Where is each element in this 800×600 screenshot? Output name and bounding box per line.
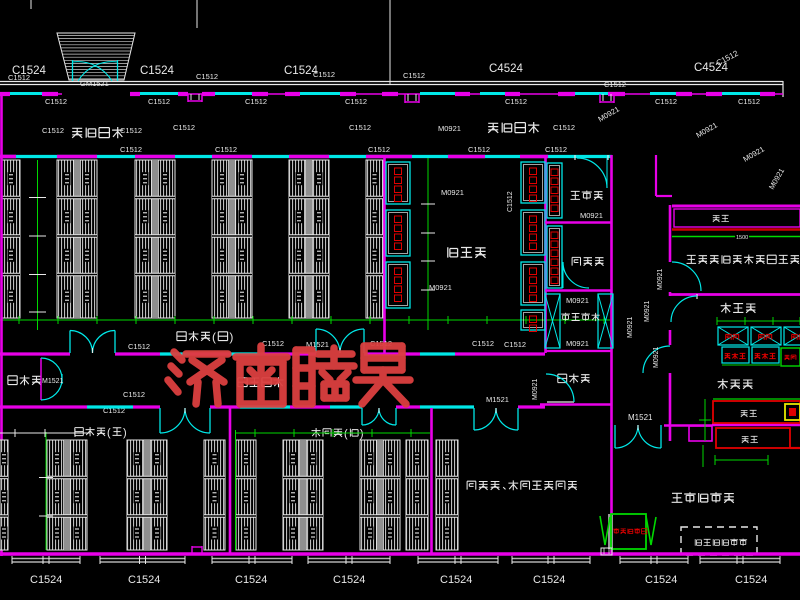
svg-text:M1521: M1521 — [42, 378, 64, 385]
svg-text:M0921: M0921 — [653, 346, 660, 368]
svg-text:M0921: M0921 — [441, 188, 464, 197]
svg-text:M1521: M1521 — [628, 413, 653, 422]
svg-text:GM1521: GM1521 — [80, 79, 109, 88]
svg-text:C1524: C1524 — [533, 574, 565, 586]
svg-text:M0921: M0921 — [657, 268, 664, 290]
svg-text:C1512: C1512 — [128, 342, 150, 351]
svg-text:C1524: C1524 — [235, 574, 267, 586]
svg-text:C1512: C1512 — [196, 72, 218, 81]
svg-text:C1512: C1512 — [262, 339, 284, 348]
svg-text:C1512: C1512 — [245, 97, 267, 106]
svg-text:C1512: C1512 — [120, 145, 142, 154]
svg-text:C1512: C1512 — [738, 97, 760, 106]
svg-text:C1512: C1512 — [403, 71, 425, 80]
svg-text:C1512: C1512 — [655, 97, 677, 106]
svg-text:M0921: M0921 — [644, 300, 651, 322]
svg-text:C4524: C4524 — [489, 63, 523, 75]
svg-text:M0921: M0921 — [566, 296, 589, 305]
svg-text:): ) — [229, 330, 233, 344]
svg-text:C1512: C1512 — [349, 123, 371, 132]
svg-text:C1524: C1524 — [440, 574, 472, 586]
svg-text:C1512: C1512 — [553, 123, 575, 132]
svg-text:(: ( — [107, 427, 111, 439]
svg-text:1500: 1500 — [736, 235, 748, 241]
svg-text:C1512: C1512 — [504, 340, 526, 349]
svg-text:M0921: M0921 — [580, 211, 603, 220]
svg-text:C1512: C1512 — [215, 145, 237, 154]
svg-text:C1512: C1512 — [507, 191, 514, 212]
svg-text:M1521: M1521 — [486, 395, 509, 404]
svg-text:C1512: C1512 — [173, 123, 195, 132]
svg-text:C1512: C1512 — [368, 145, 390, 154]
svg-text:C1524: C1524 — [333, 574, 365, 586]
svg-text:C1512: C1512 — [45, 97, 67, 106]
svg-text:C1524: C1524 — [140, 65, 174, 77]
svg-text:M0921: M0921 — [429, 283, 452, 292]
svg-text:C1512: C1512 — [545, 145, 567, 154]
svg-text:): ) — [123, 427, 127, 439]
svg-text:C1524: C1524 — [128, 574, 160, 586]
svg-text:C1512: C1512 — [123, 390, 145, 399]
svg-text:(: ( — [344, 428, 348, 440]
svg-text:C1512: C1512 — [505, 97, 527, 106]
svg-text:M0921: M0921 — [532, 378, 539, 400]
svg-text:C1524: C1524 — [645, 574, 677, 586]
svg-text:M0921: M0921 — [438, 124, 461, 133]
svg-text:C1512: C1512 — [8, 73, 30, 82]
svg-text:C1512: C1512 — [604, 80, 626, 89]
svg-text:M0921: M0921 — [627, 316, 634, 338]
svg-text:C1512: C1512 — [345, 97, 367, 106]
svg-text:C1512: C1512 — [313, 70, 335, 79]
svg-text:C1524: C1524 — [735, 574, 767, 586]
svg-text:C1524: C1524 — [30, 574, 62, 586]
svg-text:M0921: M0921 — [566, 339, 589, 348]
svg-text:): ) — [360, 428, 364, 440]
svg-text:C1512: C1512 — [148, 97, 170, 106]
svg-text:C1512: C1512 — [120, 126, 142, 135]
svg-text:C1512: C1512 — [472, 339, 494, 348]
svg-text:(: ( — [212, 330, 216, 344]
svg-text:C1512: C1512 — [468, 145, 490, 154]
svg-text:C1512: C1512 — [42, 126, 64, 135]
